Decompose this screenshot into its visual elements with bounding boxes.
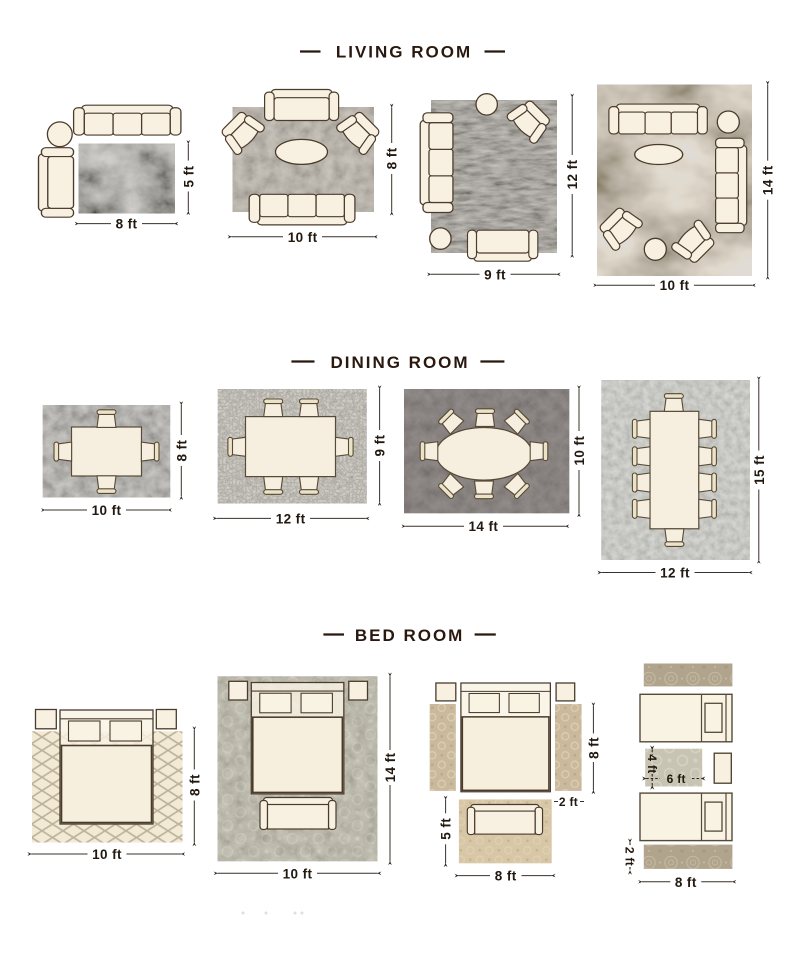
- svg-text:9 ft: 9 ft: [373, 434, 388, 456]
- svg-text:10 ft: 10 ft: [92, 503, 122, 518]
- svg-text:10 ft: 10 ft: [660, 278, 690, 293]
- svg-text:12 ft: 12 ft: [565, 160, 580, 190]
- svg-text:BED ROOM: BED ROOM: [355, 626, 465, 645]
- svg-text:14 ft: 14 ft: [761, 165, 776, 195]
- svg-text:12 ft: 12 ft: [276, 511, 306, 526]
- svg-text:8 ft: 8 ft: [116, 217, 138, 232]
- svg-text:15 ft: 15 ft: [752, 455, 767, 485]
- svg-text:8 ft: 8 ft: [385, 147, 400, 169]
- svg-text:6 ft: 6 ft: [667, 772, 686, 786]
- svg-text:8 ft: 8 ft: [187, 774, 202, 796]
- svg-text:5 ft: 5 ft: [181, 165, 196, 187]
- svg-text:10 ft: 10 ft: [92, 847, 122, 862]
- svg-text:10 ft: 10 ft: [283, 866, 313, 881]
- svg-text:9 ft: 9 ft: [484, 267, 506, 282]
- svg-text:8 ft: 8 ft: [174, 440, 189, 462]
- svg-text:5 ft: 5 ft: [439, 818, 454, 840]
- svg-text:14 ft: 14 ft: [383, 753, 398, 783]
- svg-text:4 ft: 4 ft: [645, 754, 659, 773]
- svg-text:10 ft: 10 ft: [288, 230, 318, 245]
- svg-text:2 ft: 2 ft: [559, 795, 578, 809]
- svg-text:14 ft: 14 ft: [469, 519, 499, 534]
- svg-text:12 ft: 12 ft: [660, 566, 690, 581]
- svg-text:8 ft: 8 ft: [586, 737, 601, 759]
- svg-text:10 ft: 10 ft: [572, 436, 587, 466]
- svg-text:8 ft: 8 ft: [675, 875, 697, 890]
- svg-text:DINING ROOM: DINING ROOM: [330, 353, 469, 372]
- svg-text:8 ft: 8 ft: [495, 869, 517, 884]
- svg-text:LIVING ROOM: LIVING ROOM: [336, 43, 472, 62]
- svg-text:2 ft: 2 ft: [623, 847, 637, 866]
